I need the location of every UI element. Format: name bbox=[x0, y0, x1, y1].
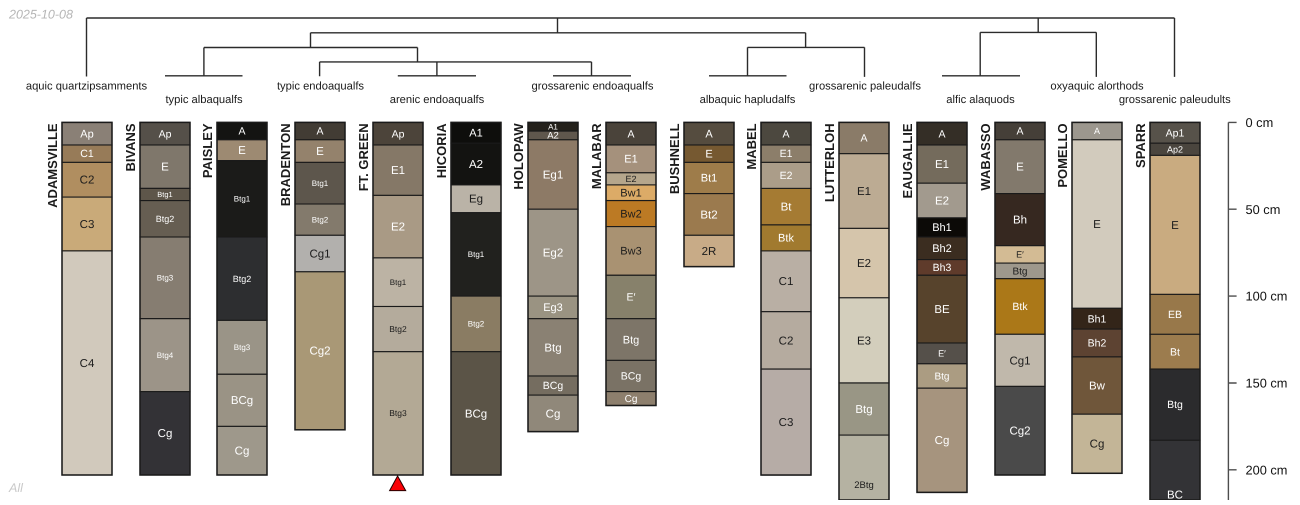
svg-text:Ap: Ap bbox=[392, 128, 405, 140]
svg-text:Eg: Eg bbox=[469, 194, 483, 206]
svg-text:C3: C3 bbox=[80, 219, 95, 231]
svg-text:typic albaqualfs: typic albaqualfs bbox=[165, 94, 243, 106]
svg-text:Cg: Cg bbox=[935, 435, 950, 447]
svg-text:E′: E′ bbox=[627, 292, 636, 304]
svg-text:C2: C2 bbox=[779, 335, 794, 347]
svg-text:Ap2: Ap2 bbox=[1167, 144, 1183, 154]
svg-text:C4: C4 bbox=[80, 358, 95, 370]
svg-text:2025-10-08: 2025-10-08 bbox=[8, 8, 73, 22]
svg-text:Btg3: Btg3 bbox=[389, 408, 407, 418]
svg-text:Btg: Btg bbox=[623, 334, 640, 346]
svg-text:50 cm: 50 cm bbox=[1246, 202, 1281, 217]
svg-text:Btg: Btg bbox=[934, 371, 949, 382]
svg-text:Btg2: Btg2 bbox=[156, 214, 175, 224]
svg-text:E1: E1 bbox=[780, 148, 793, 160]
svg-text:BIVANS: BIVANS bbox=[123, 123, 138, 171]
svg-text:PAISLEY: PAISLEY bbox=[200, 123, 215, 178]
svg-text:EAUGALLIE: EAUGALLIE bbox=[900, 123, 915, 198]
svg-text:Cg: Cg bbox=[1090, 439, 1105, 451]
svg-text:Cg1: Cg1 bbox=[309, 249, 330, 261]
svg-text:HICORIA: HICORIA bbox=[434, 123, 449, 178]
svg-text:Bh: Bh bbox=[1013, 215, 1027, 227]
svg-text:E: E bbox=[705, 148, 712, 160]
svg-text:All: All bbox=[8, 481, 24, 495]
svg-text:E: E bbox=[1016, 162, 1024, 174]
svg-text:E1: E1 bbox=[624, 154, 637, 166]
svg-text:BCg: BCg bbox=[621, 371, 642, 383]
svg-text:Ap: Ap bbox=[159, 128, 172, 140]
svg-text:E3: E3 bbox=[857, 335, 871, 347]
svg-text:Btg1: Btg1 bbox=[468, 250, 485, 259]
svg-text:SPARR: SPARR bbox=[1133, 123, 1148, 168]
svg-text:oxyaquic alorthods: oxyaquic alorthods bbox=[1050, 81, 1144, 93]
svg-text:E: E bbox=[1171, 220, 1179, 232]
svg-text:Btg2: Btg2 bbox=[389, 324, 407, 334]
svg-text:E2: E2 bbox=[780, 170, 793, 182]
svg-text:200 cm: 200 cm bbox=[1246, 462, 1288, 477]
svg-text:E2: E2 bbox=[391, 222, 405, 234]
svg-text:0 cm: 0 cm bbox=[1246, 115, 1274, 130]
svg-text:grossarenic paleudalfs: grossarenic paleudalfs bbox=[809, 81, 921, 93]
svg-text:E: E bbox=[1093, 219, 1101, 231]
svg-text:A1: A1 bbox=[469, 128, 482, 140]
svg-text:FT. GREEN: FT. GREEN bbox=[356, 123, 371, 191]
svg-text:E1: E1 bbox=[391, 165, 405, 177]
svg-text:A: A bbox=[238, 126, 245, 138]
svg-text:alfic alaquods: alfic alaquods bbox=[946, 94, 1015, 106]
svg-text:typic endoaqualfs: typic endoaqualfs bbox=[277, 81, 364, 93]
svg-text:E: E bbox=[316, 146, 324, 158]
svg-text:E: E bbox=[238, 145, 246, 157]
svg-text:Btg1: Btg1 bbox=[312, 179, 329, 188]
svg-text:Cg: Cg bbox=[158, 428, 173, 440]
svg-text:Bh2: Bh2 bbox=[1088, 338, 1107, 350]
svg-text:EB: EB bbox=[1168, 309, 1182, 321]
svg-text:Btg3: Btg3 bbox=[234, 343, 251, 352]
svg-text:Cg: Cg bbox=[546, 408, 561, 420]
svg-text:Bw1: Bw1 bbox=[620, 188, 641, 200]
svg-text:BCg: BCg bbox=[231, 395, 253, 407]
svg-text:Btg: Btg bbox=[1167, 399, 1183, 411]
svg-text:Bh1: Bh1 bbox=[1088, 313, 1107, 325]
svg-text:BE: BE bbox=[934, 304, 950, 316]
svg-text:A: A bbox=[316, 126, 323, 138]
svg-text:grossarenic paleudults: grossarenic paleudults bbox=[1119, 94, 1231, 106]
svg-text:A: A bbox=[1016, 126, 1023, 138]
svg-text:Btg: Btg bbox=[1012, 266, 1027, 277]
svg-text:Btg2: Btg2 bbox=[233, 274, 252, 284]
svg-text:BCg: BCg bbox=[543, 380, 564, 392]
svg-text:2R: 2R bbox=[702, 246, 717, 258]
svg-text:Btg1: Btg1 bbox=[390, 278, 407, 287]
svg-text:100 cm: 100 cm bbox=[1246, 289, 1288, 304]
svg-text:A: A bbox=[938, 128, 945, 140]
svg-text:C1: C1 bbox=[80, 148, 94, 160]
svg-text:ADAMSVILLE: ADAMSVILLE bbox=[45, 123, 60, 208]
svg-text:C2: C2 bbox=[80, 175, 95, 187]
svg-text:Cg1: Cg1 bbox=[1009, 355, 1030, 367]
svg-text:C3: C3 bbox=[779, 417, 794, 429]
svg-text:C1: C1 bbox=[779, 276, 794, 288]
svg-text:2Btg: 2Btg bbox=[854, 480, 874, 491]
svg-text:A: A bbox=[705, 128, 713, 140]
svg-text:Btg1: Btg1 bbox=[234, 195, 251, 204]
svg-text:BCg: BCg bbox=[465, 408, 487, 420]
svg-text:Btg: Btg bbox=[855, 404, 872, 416]
svg-text:LUTTERLOH: LUTTERLOH bbox=[822, 123, 837, 202]
svg-text:MALABAR: MALABAR bbox=[589, 123, 604, 189]
svg-text:Bh3: Bh3 bbox=[933, 262, 952, 274]
svg-text:Bw3: Bw3 bbox=[620, 246, 641, 258]
svg-text:Btk: Btk bbox=[1012, 301, 1028, 313]
svg-text:E2: E2 bbox=[857, 258, 871, 270]
svg-text:Bt: Bt bbox=[1170, 346, 1180, 358]
svg-text:Btg: Btg bbox=[544, 342, 561, 354]
svg-text:aquic quartzipsamments: aquic quartzipsamments bbox=[26, 81, 148, 93]
svg-text:A2: A2 bbox=[547, 131, 559, 142]
svg-text:E1: E1 bbox=[857, 186, 871, 198]
svg-text:E′: E′ bbox=[1016, 250, 1024, 260]
svg-text:A2: A2 bbox=[469, 159, 483, 171]
svg-text:150 cm: 150 cm bbox=[1246, 376, 1288, 391]
svg-text:BRADENTON: BRADENTON bbox=[278, 123, 293, 206]
svg-text:BUSHNELL: BUSHNELL bbox=[667, 123, 682, 194]
svg-text:Btg1: Btg1 bbox=[157, 190, 172, 199]
svg-text:Eg1: Eg1 bbox=[543, 169, 563, 181]
svg-text:Btg3: Btg3 bbox=[157, 274, 174, 283]
svg-text:Cg: Cg bbox=[625, 394, 638, 405]
svg-text:Bw: Bw bbox=[1089, 381, 1106, 393]
svg-text:A: A bbox=[860, 133, 867, 145]
svg-text:E: E bbox=[161, 162, 169, 174]
svg-text:POMELLO: POMELLO bbox=[1055, 123, 1070, 187]
svg-text:Cg2: Cg2 bbox=[309, 346, 330, 358]
svg-text:grossarenic endoaqualfs: grossarenic endoaqualfs bbox=[532, 81, 654, 93]
svg-text:Cg: Cg bbox=[235, 446, 250, 458]
svg-text:Bt: Bt bbox=[781, 202, 793, 214]
svg-text:Eg2: Eg2 bbox=[543, 248, 563, 260]
svg-text:BC: BC bbox=[1167, 490, 1183, 500]
svg-text:albaquic hapludalfs: albaquic hapludalfs bbox=[700, 94, 796, 106]
svg-text:Eg3: Eg3 bbox=[543, 302, 563, 314]
svg-text:E2: E2 bbox=[625, 174, 636, 184]
svg-text:Bh1: Bh1 bbox=[932, 222, 952, 234]
svg-text:Ap: Ap bbox=[80, 128, 93, 140]
svg-text:Cg2: Cg2 bbox=[1009, 426, 1030, 438]
svg-text:E′: E′ bbox=[938, 349, 946, 359]
svg-text:Btg2: Btg2 bbox=[468, 320, 485, 329]
svg-text:E2: E2 bbox=[935, 196, 949, 208]
svg-text:Bt1: Bt1 bbox=[701, 173, 718, 185]
svg-text:A: A bbox=[627, 128, 634, 140]
svg-text:Ap1: Ap1 bbox=[1166, 127, 1185, 139]
svg-text:MABEL: MABEL bbox=[744, 123, 759, 169]
svg-text:A: A bbox=[1094, 126, 1100, 136]
svg-text:HOLOPAW: HOLOPAW bbox=[511, 123, 526, 190]
svg-text:arenic endoaqualfs: arenic endoaqualfs bbox=[390, 94, 485, 106]
svg-text:WABASSO: WABASSO bbox=[978, 123, 993, 190]
svg-text:Bt2: Bt2 bbox=[700, 209, 717, 221]
svg-text:E1: E1 bbox=[935, 159, 949, 171]
svg-text:Bh2: Bh2 bbox=[932, 243, 952, 255]
svg-text:A: A bbox=[782, 128, 789, 140]
svg-text:Btg4: Btg4 bbox=[157, 351, 174, 360]
svg-text:Btk: Btk bbox=[778, 233, 794, 245]
svg-text:Btg2: Btg2 bbox=[312, 215, 329, 224]
svg-text:Bw2: Bw2 bbox=[620, 208, 641, 220]
